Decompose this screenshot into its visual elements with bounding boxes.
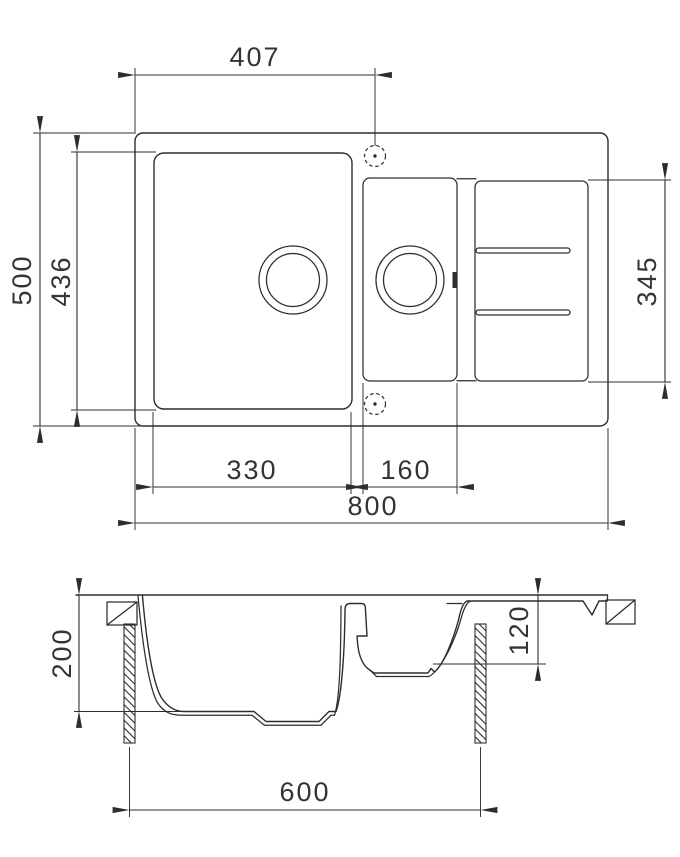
countertop-left: [107, 602, 137, 625]
small-drain-inner: [384, 254, 437, 307]
section-profile-inner: [143, 596, 607, 722]
countertop-right: [606, 600, 635, 624]
dim-label-800: 800: [347, 491, 398, 521]
dim-small-bowl-width: 160: [363, 383, 457, 494]
dim-label-436: 436: [46, 255, 76, 306]
dim-main-bowl-width: 330: [153, 412, 351, 494]
drainer-groove-1: [476, 248, 570, 253]
drawing-page: 407 500 436 345 330: [0, 0, 680, 857]
fixing-clamp-left: [124, 624, 135, 743]
main-drain-inner: [267, 254, 320, 307]
dim-label-120: 120: [504, 604, 534, 655]
sink-outline: [135, 133, 608, 426]
main-drain-outer: [259, 246, 327, 314]
technical-drawing-canvas: 407 500 436 345 330: [0, 0, 680, 857]
tap-hole-bottom-center: [373, 402, 376, 405]
fixing-clamp-right: [475, 624, 486, 743]
drainer-area: [475, 181, 588, 381]
section-view: 200 120 600: [47, 595, 635, 817]
top-view: 407 500 436 345 330: [7, 42, 671, 530]
tap-hole-top-center: [373, 154, 376, 157]
dim-small-bowl-depth: 120: [433, 595, 546, 664]
dim-label-500: 500: [7, 254, 37, 305]
dim-overall-width: 800: [135, 428, 608, 530]
dim-label-407: 407: [229, 42, 280, 72]
drainer-groove-2: [476, 310, 570, 315]
dim-label-200: 200: [47, 627, 77, 678]
small-drain-outer: [376, 246, 444, 314]
dim-main-bowl-depth: 200: [47, 595, 186, 712]
dim-label-160: 160: [380, 455, 431, 485]
dim-main-bowl-length: 436: [46, 152, 156, 410]
section-profile-outer-right: [371, 601, 470, 676]
main-bowl: [154, 153, 352, 409]
dim-cabinet-width: 600: [130, 747, 481, 817]
dim-tap-hole-offset: 407: [135, 42, 375, 146]
dim-label-600: 600: [279, 777, 330, 807]
overflow-mark: [453, 272, 458, 288]
dim-label-345: 345: [632, 255, 662, 306]
dim-right-zone-length: 345: [588, 180, 671, 382]
dim-label-330: 330: [226, 455, 277, 485]
small-bowl: [363, 178, 457, 381]
